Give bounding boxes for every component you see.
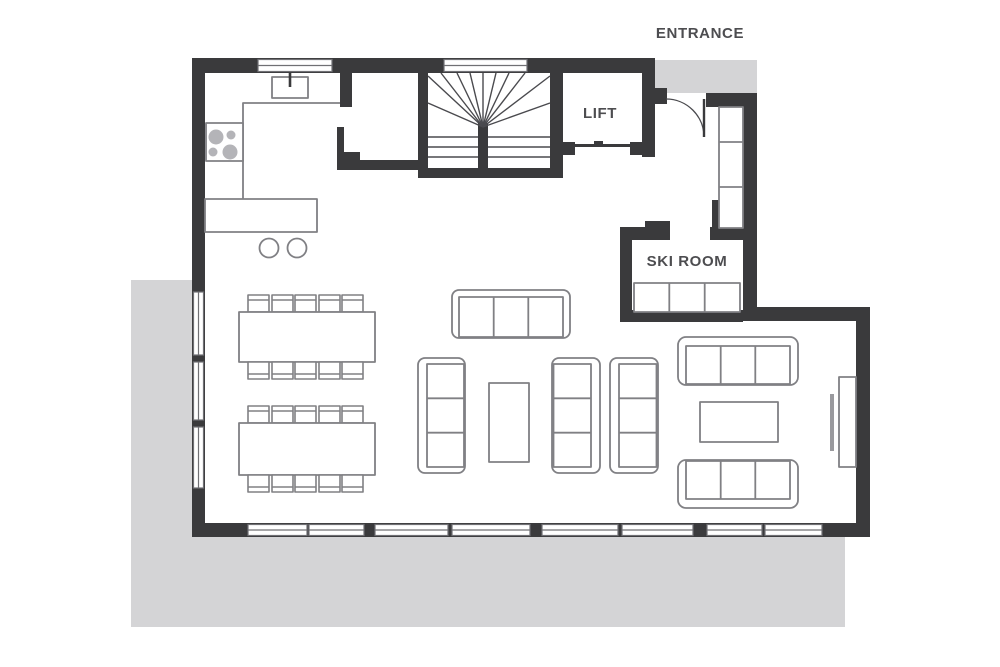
entrance-label: ENTRANCE xyxy=(656,25,744,42)
coffee-table-right xyxy=(700,402,778,442)
table-top xyxy=(239,423,375,475)
window-bottom-1 xyxy=(248,525,307,536)
window-bottom-4 xyxy=(452,525,530,536)
window-top-kitchen xyxy=(258,60,332,72)
wall-store-left-upper xyxy=(340,73,352,107)
sofa-right-top xyxy=(678,337,798,385)
wall-right-lower xyxy=(856,307,870,537)
staircase xyxy=(428,73,550,157)
wall-stairs-right-lift-left xyxy=(550,72,563,178)
sofa-center-left xyxy=(418,358,465,473)
window-bottom-7 xyxy=(707,525,762,536)
sofa-center-right xyxy=(552,358,600,473)
terrace-west-strip xyxy=(131,280,192,537)
tv-screen xyxy=(830,394,834,451)
dining-chairs-bottom xyxy=(248,475,363,492)
window-bottom-8 xyxy=(765,525,822,536)
window-bottom-6 xyxy=(622,525,693,536)
burner xyxy=(209,148,218,157)
entrance-wardrobe xyxy=(719,107,743,228)
wall-skiroom-top-step xyxy=(645,221,670,228)
sofa-center-top xyxy=(452,290,570,338)
ski-room-label: SKI ROOM xyxy=(647,253,728,270)
tv-media-unit xyxy=(830,377,856,467)
wall-top-right xyxy=(706,93,757,107)
media-console xyxy=(839,377,856,467)
window-bottom-2 xyxy=(309,525,364,536)
window-bottom-5 xyxy=(542,525,618,536)
sofa-right-bottom xyxy=(678,460,798,508)
window-left-2 xyxy=(194,362,204,420)
window-bottom-3 xyxy=(375,525,448,536)
burner xyxy=(227,131,236,140)
burner xyxy=(209,130,224,145)
burner xyxy=(223,145,238,160)
wall-lift-right xyxy=(642,73,655,157)
coffee-table-center xyxy=(489,383,529,462)
dining-table-2 xyxy=(239,406,375,492)
door-swing-arc xyxy=(666,99,704,137)
wall-store-foot xyxy=(337,152,360,160)
dining-table-1 xyxy=(239,295,375,379)
entrance-door xyxy=(666,99,704,137)
dining-chairs-top xyxy=(248,295,363,312)
floor-plan: ENTRANCE LIFT SKI ROOM xyxy=(0,0,1000,667)
kitchen-island xyxy=(205,199,317,232)
kitchen-counter-edge xyxy=(243,103,340,199)
wall-store-bottom xyxy=(337,160,422,170)
entrance-pad xyxy=(654,60,757,93)
window-left-1 xyxy=(194,292,204,355)
wall-right-upper xyxy=(743,93,757,321)
wall-step-below-skiroom xyxy=(743,307,870,321)
furniture xyxy=(205,73,856,508)
terrace-south xyxy=(131,537,845,627)
stair-newel-post xyxy=(478,123,488,168)
dining-chairs-top xyxy=(248,406,363,423)
entrance-door-jamb xyxy=(655,88,667,104)
lift-door-jamb-left xyxy=(563,142,575,155)
dining-chairs-bottom xyxy=(248,362,363,379)
table-top xyxy=(239,312,375,362)
wall-stairs-bottom xyxy=(418,168,563,178)
ski-room-bench xyxy=(634,283,740,312)
wall-skiroom-left xyxy=(620,227,632,322)
lift-door-jamb-right xyxy=(630,142,642,155)
window-left-3 xyxy=(194,427,204,488)
sofa-center-right-2 xyxy=(610,358,658,473)
lift-label: LIFT xyxy=(583,105,617,122)
lift-door-tick xyxy=(594,141,603,147)
bar-stool xyxy=(260,239,279,258)
window-top-stairs xyxy=(444,60,527,72)
bar-stool xyxy=(288,239,307,258)
